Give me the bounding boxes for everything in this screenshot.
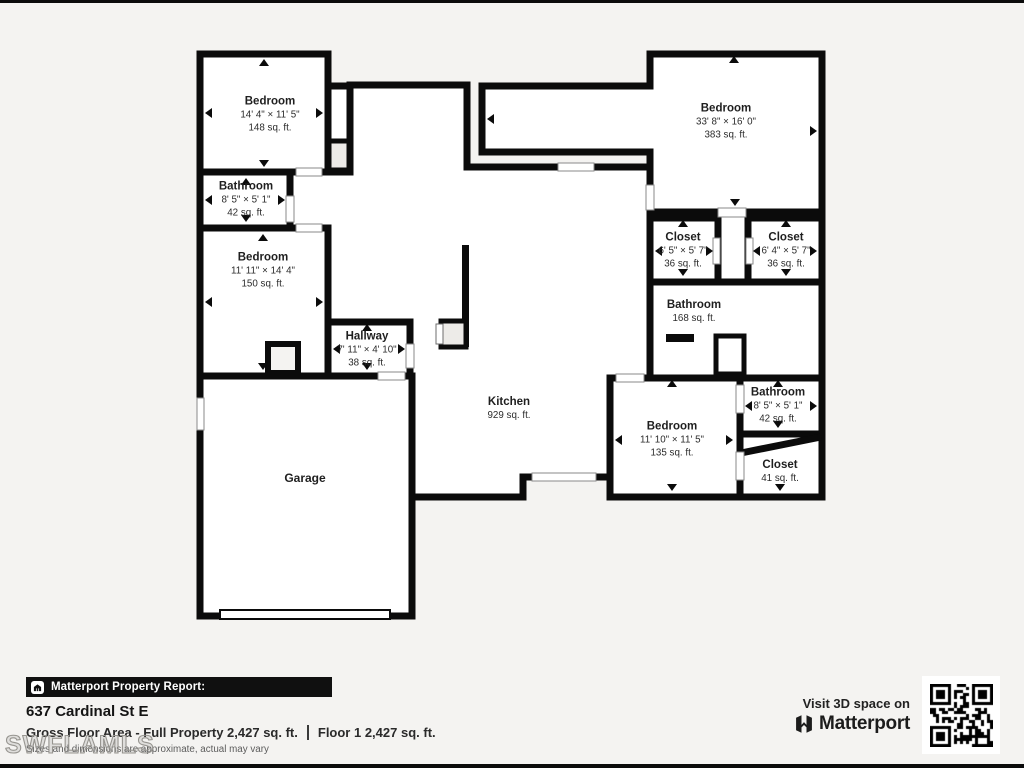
room-area: 42 sq. ft. bbox=[751, 414, 805, 427]
door-opening bbox=[713, 238, 720, 264]
pantry-door-opening bbox=[436, 324, 443, 344]
visit-3d-block: Visit 3D space on Matterport bbox=[794, 696, 910, 735]
report-bar-label: Matterport Property Report: bbox=[51, 681, 205, 693]
walls-garage bbox=[200, 376, 412, 616]
room-label-hallway: Hallway 7' 11" × 4' 10" 38 sq. ft. bbox=[337, 329, 396, 370]
building-icon bbox=[31, 681, 44, 694]
room-name: Bathroom bbox=[667, 298, 721, 313]
room-name: Closet bbox=[658, 230, 707, 245]
garage-door-opening bbox=[220, 610, 390, 619]
room-area: 36 sq. ft. bbox=[658, 259, 707, 272]
room-label-garage: Garage bbox=[284, 471, 325, 487]
room-label-closet-left: Closet 6' 5" × 5' 7" 36 sq. ft. bbox=[658, 230, 707, 271]
room-name: Bedroom bbox=[696, 101, 756, 116]
room-label-bedroom-top-left: Bedroom 14' 4" × 11' 5" 148 sq. ft. bbox=[240, 94, 299, 135]
room-label-kitchen: Kitchen 929 sq. ft. bbox=[487, 395, 530, 423]
room-name: Bedroom bbox=[240, 94, 299, 109]
room-name: Bathroom bbox=[751, 385, 805, 400]
door-opening bbox=[746, 238, 753, 264]
room-dims: 6' 5" × 5' 7" bbox=[658, 246, 707, 259]
divider bbox=[307, 725, 309, 740]
room-area: 42 sq. ft. bbox=[219, 208, 273, 221]
room-area: 929 sq. ft. bbox=[487, 410, 530, 423]
room-dims: 33' 8" × 16' 0" bbox=[696, 117, 756, 130]
room-dims: 11' 11" × 14' 4" bbox=[231, 266, 295, 279]
exterior-notch bbox=[268, 344, 298, 373]
room-label-closet-right: Closet 6' 4" × 5' 7" 36 sq. ft. bbox=[761, 230, 810, 271]
room-label-bedroom-bottom-right: Bedroom 11' 10" × 11' 5" 135 sq. ft. bbox=[640, 419, 704, 460]
door-opening bbox=[406, 344, 414, 368]
room-dims: 14' 4" × 11' 5" bbox=[240, 110, 299, 123]
room-dims: 6' 4" × 5' 7" bbox=[761, 246, 810, 259]
door-opening bbox=[296, 224, 322, 232]
property-address: 637 Cardinal St E bbox=[26, 703, 149, 720]
room-label-bathroom-bottom-right: Bathroom 8' 5" × 5' 1" 42 sq. ft. bbox=[751, 385, 805, 426]
pantry-box bbox=[441, 321, 466, 347]
room-label-bathroom-top-left: Bathroom 8' 5" × 5' 1" 42 sq. ft. bbox=[219, 179, 273, 220]
room-label-bedroom-mid-left: Bedroom 11' 11" × 14' 4" 150 sq. ft. bbox=[231, 250, 295, 291]
window-opening bbox=[558, 163, 594, 171]
water-closet-box bbox=[716, 336, 744, 374]
matterport-brand-text: Matterport bbox=[819, 713, 910, 735]
door-opening bbox=[616, 374, 644, 382]
room-dims: 8' 5" × 5' 1" bbox=[751, 401, 805, 414]
door-opening bbox=[286, 196, 294, 222]
door-opening bbox=[718, 208, 746, 217]
door-opening bbox=[736, 452, 744, 480]
matterport-report-bar: Matterport Property Report: bbox=[26, 677, 332, 697]
room-name: Kitchen bbox=[487, 395, 530, 410]
room-name: Bedroom bbox=[231, 250, 295, 265]
room-dims: 7' 11" × 4' 10" bbox=[337, 345, 396, 358]
nook-closet-box bbox=[329, 141, 349, 170]
visit-3d-label: Visit 3D space on bbox=[794, 696, 910, 711]
room-label-closet-bottom-right: Closet 41 sq. ft. bbox=[761, 458, 799, 486]
qr-code bbox=[922, 676, 1000, 754]
room-name: Hallway bbox=[337, 329, 396, 344]
room-name: Garage bbox=[284, 471, 325, 487]
room-area: 168 sq. ft. bbox=[667, 313, 721, 326]
room-dims: 11' 10" × 11' 5" bbox=[640, 435, 704, 448]
room-area: 383 sq. ft. bbox=[696, 130, 756, 143]
room-area: 148 sq. ft. bbox=[240, 123, 299, 136]
shower-partition bbox=[666, 334, 694, 342]
mls-watermark: SWFLAMLS bbox=[5, 731, 155, 760]
room-name: Bedroom bbox=[640, 419, 704, 434]
room-dims: 8' 5" × 5' 1" bbox=[219, 195, 273, 208]
room-name: Closet bbox=[761, 230, 810, 245]
door-opening bbox=[736, 385, 744, 413]
door-opening bbox=[197, 398, 204, 430]
room-area: 41 sq. ft. bbox=[761, 473, 799, 486]
room-name: Closet bbox=[761, 458, 799, 473]
room-label-bathroom-center: Bathroom 168 sq. ft. bbox=[667, 298, 721, 326]
floor-1-area-label: Floor 1 2,427 sq. ft. bbox=[318, 725, 436, 740]
floor-plan-page: Bedroom 14' 4" × 11' 5" 148 sq. ft. Bath… bbox=[0, 0, 1024, 768]
floor-plan-drawing bbox=[0, 0, 1024, 768]
room-name: Bathroom bbox=[219, 179, 273, 194]
room-area: 135 sq. ft. bbox=[640, 448, 704, 461]
matterport-logo-icon bbox=[794, 714, 814, 734]
door-opening bbox=[378, 372, 405, 380]
door-opening bbox=[646, 185, 654, 210]
door-opening bbox=[296, 168, 322, 176]
room-area: 38 sq. ft. bbox=[337, 358, 396, 371]
room-area: 150 sq. ft. bbox=[231, 279, 295, 292]
room-label-bedroom-top-right: Bedroom 33' 8" × 16' 0" 383 sq. ft. bbox=[696, 101, 756, 142]
room-area: 36 sq. ft. bbox=[761, 259, 810, 272]
entry-door-opening bbox=[532, 473, 596, 481]
